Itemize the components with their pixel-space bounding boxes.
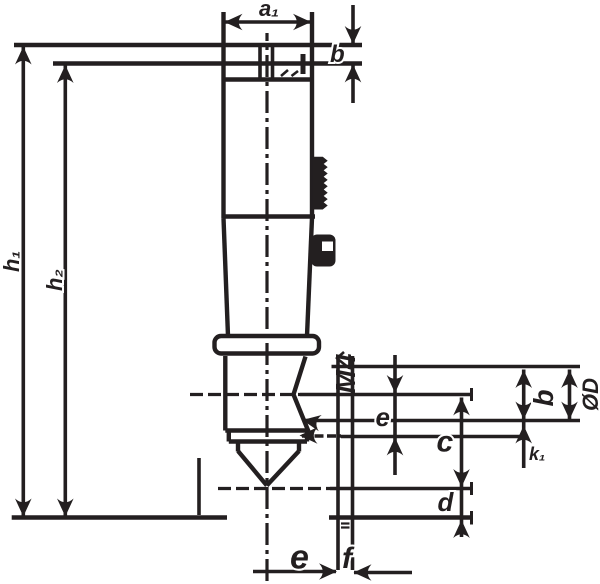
svg-text:e: e bbox=[376, 402, 390, 432]
svg-text:ØD: ØD bbox=[578, 378, 600, 411]
svg-text:b: b bbox=[528, 389, 559, 406]
svg-text:h₁: h₁ bbox=[0, 251, 24, 272]
svg-text:b: b bbox=[330, 41, 345, 68]
svg-text:e: e bbox=[290, 539, 309, 577]
svg-text:M4: M4 bbox=[330, 353, 361, 394]
svg-text:d: d bbox=[438, 487, 455, 517]
svg-text:h₂: h₂ bbox=[42, 269, 67, 291]
svg-text:c: c bbox=[437, 426, 454, 459]
svg-text:k₁: k₁ bbox=[529, 444, 545, 464]
svg-text:a₁: a₁ bbox=[259, 0, 279, 21]
